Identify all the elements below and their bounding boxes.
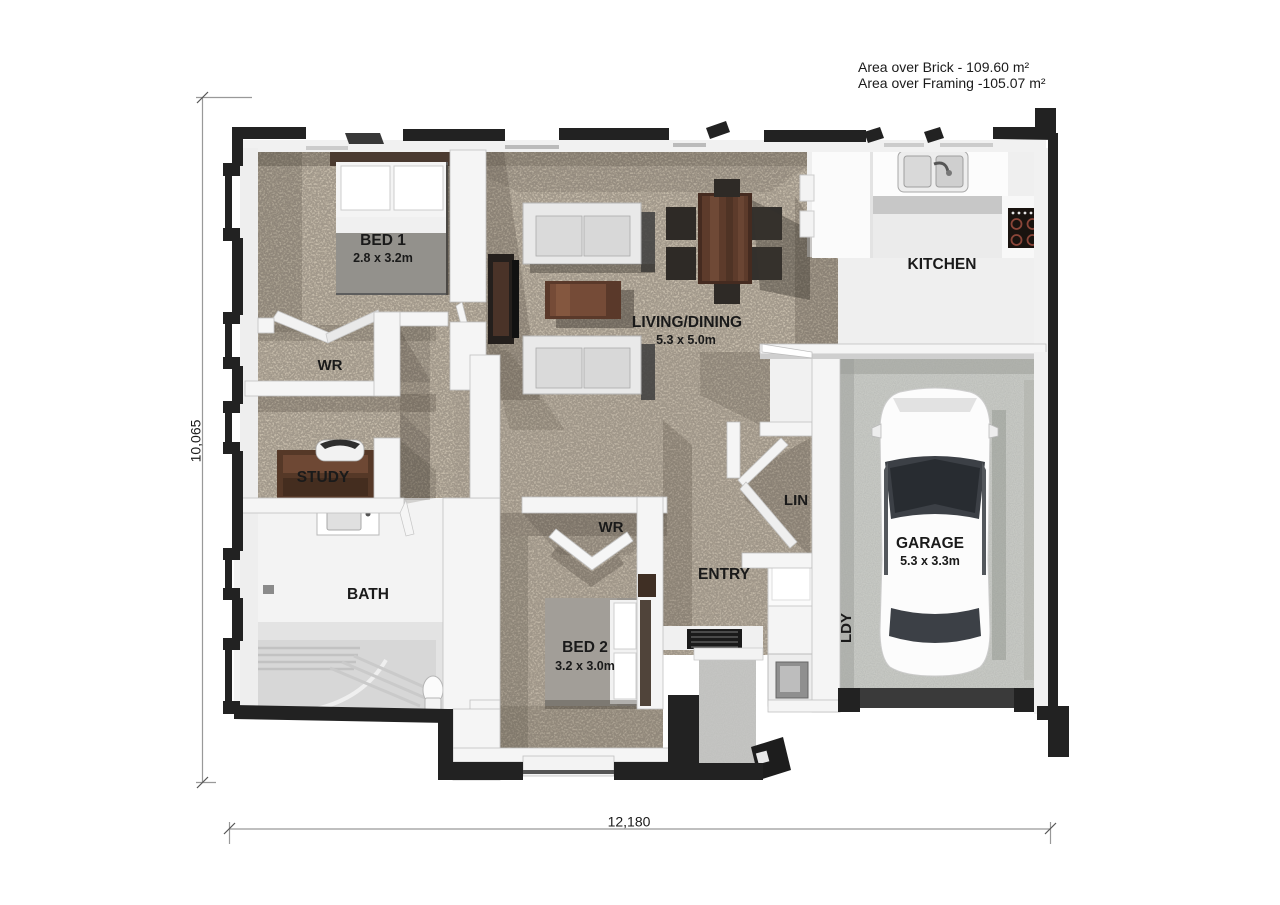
svg-text:10,065: 10,065 <box>188 419 204 462</box>
svg-text:KITCHEN: KITCHEN <box>908 256 977 273</box>
svg-text:WR: WR <box>318 357 343 374</box>
svg-text:LDY: LDY <box>838 613 855 643</box>
svg-text:STUDY: STUDY <box>297 469 350 486</box>
svg-text:LIVING/DINING: LIVING/DINING <box>632 314 742 331</box>
svg-text:ENTRY: ENTRY <box>698 566 751 583</box>
svg-text:BED 2: BED 2 <box>562 639 608 656</box>
svg-text:5.3 x 3.3m: 5.3 x 3.3m <box>900 554 960 568</box>
svg-text:BED 1: BED 1 <box>360 232 406 249</box>
svg-text:3.2 x 3.0m: 3.2 x 3.0m <box>555 659 615 673</box>
svg-text:2.8 x 3.2m: 2.8 x 3.2m <box>353 251 413 265</box>
svg-text:12,180: 12,180 <box>608 814 651 830</box>
svg-text:Area over Framing -105.07 m²: Area over Framing -105.07 m² <box>858 75 1046 91</box>
svg-text:Area over Brick - 109.60 m²: Area over Brick - 109.60 m² <box>858 59 1030 75</box>
svg-text:5.3 x 5.0m: 5.3 x 5.0m <box>656 333 716 347</box>
svg-text:WR: WR <box>599 519 624 536</box>
svg-text:GARAGE: GARAGE <box>896 535 964 552</box>
svg-text:BATH: BATH <box>347 586 389 603</box>
svg-text:LIN: LIN <box>784 492 808 509</box>
